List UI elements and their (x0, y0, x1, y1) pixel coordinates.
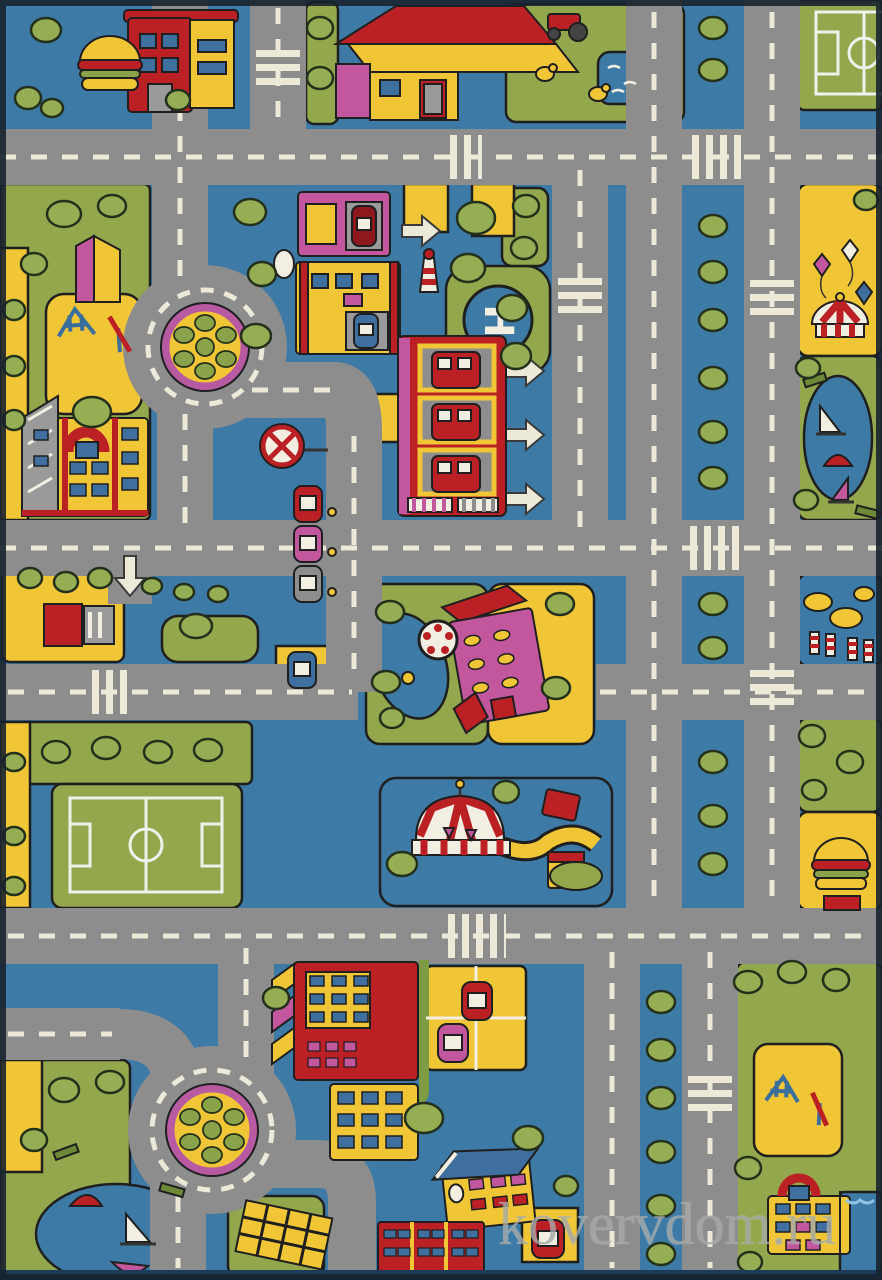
car (294, 526, 322, 562)
rug-artwork: H (0, 0, 882, 1280)
roundabout-lower-island (166, 1084, 258, 1176)
car (438, 1024, 468, 1062)
roundabout-upper-island (161, 303, 249, 391)
gas-station (44, 604, 114, 646)
car (294, 486, 322, 522)
street-kiosk (76, 236, 120, 302)
burger-icon (812, 838, 870, 889)
burger-icon (78, 36, 142, 90)
car (532, 1220, 564, 1258)
car (294, 566, 322, 602)
car (462, 982, 492, 1020)
fire-station (398, 336, 506, 516)
car (288, 652, 316, 688)
car (354, 314, 378, 348)
car (352, 206, 376, 246)
rug-photo: H (0, 0, 882, 1280)
brick-houses (378, 1222, 484, 1278)
